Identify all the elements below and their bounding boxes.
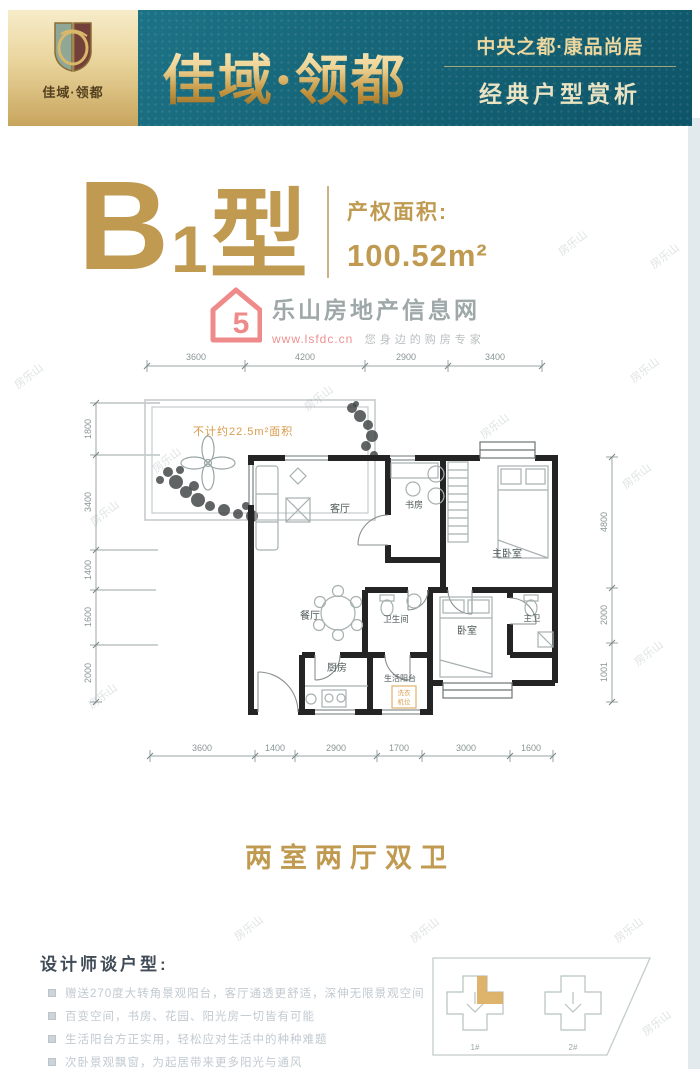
building-2-footprint — [545, 976, 601, 1030]
room-label-living: 客厅 — [330, 502, 350, 515]
header-taglines: 中央之都·康品尚居 经典户型赏析 — [444, 32, 676, 109]
dimension-labels-top: 3600 4200 2900 3400 — [186, 352, 505, 362]
site-plan-boundary — [433, 958, 650, 1055]
dim-label: 1800 — [83, 419, 93, 439]
designer-point-text: 生活阳台方正实用，轻松应对生活中的种种难题 — [65, 1033, 328, 1048]
sofa-icon — [256, 466, 310, 550]
designer-point: 赠送270度大转角景观阳台，客厅通透更舒适，深伸无限景观空间 — [40, 987, 420, 1002]
room-label-bathroom: 卫生间 — [383, 614, 409, 624]
dim-label: 3400 — [83, 492, 93, 512]
washer-label-1: 洗衣 — [398, 688, 412, 697]
dim-label: 1600 — [83, 607, 93, 627]
room-label-master-bath: 主卫 — [523, 613, 541, 623]
unit-type-number: 1 — [171, 216, 208, 282]
dim-label: 4800 — [599, 512, 609, 532]
brand-shield-icon — [49, 20, 97, 76]
room-label-master-bedroom: 主卧室 — [492, 547, 522, 560]
room-label-bedroom: 卧室 — [457, 624, 477, 637]
dim-label: 2900 — [326, 743, 346, 753]
dining-table-icon — [314, 586, 363, 641]
ls-house-logo-icon: 5 — [210, 287, 262, 343]
header-teal-panel: 佳域·领都 中央之都·康品尚居 经典户型赏析 — [138, 10, 692, 126]
washer-label-2: 机位 — [398, 697, 412, 706]
flyer-page: 佳域·领都 佳域·领都 中央之都·康品尚居 经典户型赏析 B 1 型 产权面积:… — [0, 0, 700, 1069]
tagline-top: 中央之都·康品尚居 — [444, 32, 676, 59]
tagline-divider — [444, 66, 676, 67]
dim-label: 3600 — [186, 352, 206, 362]
dim-label: 2000 — [599, 605, 609, 625]
designer-point: 次卧景观飘窗，为起居带来更多阳光与通风 — [40, 1056, 420, 1069]
site-name: 乐山房地产信息网 — [272, 291, 485, 325]
dim-label: 2000 — [83, 663, 93, 683]
dim-label: 1600 — [521, 743, 541, 753]
site-url: www.lsfdc.cn — [272, 332, 353, 346]
dim-label: 1700 — [389, 743, 409, 753]
room-label-service-balcony: 生活阳台 — [384, 673, 416, 683]
dim-label: 1400 — [83, 560, 93, 580]
floor-plan: 3600 4200 2900 3400 3600 1400 2900 1700 … — [0, 350, 700, 780]
site-watermark-text: 乐山房地产信息网 www.lsfdc.cn 您身边的购房专家 — [272, 287, 485, 347]
bed-icon — [440, 597, 492, 677]
designer-point: 百变空间，书房、花园、阳光房一切皆有可能 — [40, 1010, 420, 1025]
designer-point-list: 赠送270度大转角景观阳台，客厅通透更舒适，深伸无限景观空间 百变空间，书房、花… — [40, 987, 420, 1069]
dim-label: 3000 — [456, 743, 476, 753]
kitchen-counter-icon — [305, 686, 368, 707]
unit-type-title: B 1 型 — [78, 166, 308, 286]
building-1-label: 1# — [471, 1043, 480, 1052]
washer-badge: 洗衣 机位 — [392, 686, 416, 708]
plant-icon — [347, 401, 378, 459]
designer-notes: 设计师谈户型: 赠送270度大转角景观阳台，客厅通透更舒适，深伸无限景观空间 百… — [40, 950, 420, 1069]
page-watermark: 房乐山 — [611, 914, 647, 947]
brand-title: 佳域·领都 — [162, 36, 407, 115]
toilet-icon — [380, 594, 421, 616]
bullet-square-icon — [48, 1012, 56, 1020]
site-watermark: 5 乐山房地产信息网 www.lsfdc.cn 您身边的购房专家 — [210, 287, 485, 347]
designer-point-text: 赠送270度大转角景观阳台，客厅通透更舒适，深伸无限景观空间 — [65, 987, 425, 1002]
dim-label: 2900 — [396, 352, 416, 362]
designer-point: 生活阳台方正实用，轻松应对生活中的种种难题 — [40, 1033, 420, 1048]
dimension-chain-left — [90, 400, 160, 705]
site-slogan: 您身边的购房专家 — [365, 334, 485, 346]
bullet-square-icon — [48, 989, 56, 997]
unit-title-divider — [327, 186, 329, 278]
room-label-dining: 餐厅 — [300, 609, 320, 622]
brand-logo-panel: 佳域·领都 — [8, 10, 138, 126]
dim-label: 3600 — [192, 743, 212, 753]
tagline-bottom: 经典户型赏析 — [444, 75, 676, 109]
dimension-labels-left: 1800 3400 1400 1600 2000 — [83, 419, 93, 683]
dimension-labels-bottom: 3600 1400 2900 1700 3000 1600 — [192, 743, 541, 753]
dimension-labels-right: 4800 2000 1001 — [599, 512, 609, 682]
site-plan-key: 1# 2# — [425, 950, 665, 1065]
dim-label: 3400 — [485, 352, 505, 362]
page-watermark: 房乐山 — [407, 914, 443, 947]
designer-point-text: 次卧景观飘窗，为起居带来更多阳光与通风 — [65, 1056, 303, 1069]
area-value: 100.52m² — [347, 238, 488, 274]
dim-label: 1400 — [265, 743, 285, 753]
area-block: 产权面积: 100.52m² — [347, 196, 488, 274]
dim-label: 4200 — [295, 352, 315, 362]
bullet-square-icon — [48, 1058, 56, 1066]
dim-label: 1001 — [599, 662, 609, 682]
page-watermark: 房乐山 — [231, 912, 267, 945]
unit-type-suffix: 型 — [210, 186, 308, 284]
wardrobe-icon — [448, 462, 468, 542]
room-label-study: 书房 — [405, 499, 423, 510]
brand-logo-text: 佳域·领都 — [42, 82, 103, 101]
designer-point-text: 百变空间，书房、花园、阳光房一切皆有可能 — [65, 1010, 315, 1025]
unit-type-letter: B — [78, 166, 169, 286]
master-bed-icon — [498, 466, 548, 558]
study-desk-icon — [391, 463, 444, 504]
terrace-table-icon — [181, 436, 235, 490]
page-watermark: 房乐山 — [555, 227, 591, 260]
header-banner: 佳域·领都 佳域·领都 中央之都·康品尚居 经典户型赏析 — [8, 10, 692, 126]
bullet-square-icon — [48, 1035, 56, 1043]
building-2-label: 2# — [569, 1043, 578, 1052]
layout-summary-title: 两室两厅双卫 — [0, 836, 700, 875]
area-label: 产权面积: — [347, 196, 488, 226]
designer-heading: 设计师谈户型: — [40, 950, 420, 975]
site-tagline: www.lsfdc.cn 您身边的购房专家 — [272, 331, 485, 347]
room-label-kitchen: 厨房 — [327, 661, 347, 674]
ls-logo-glyph: 5 — [233, 307, 250, 340]
highlighted-unit — [477, 976, 503, 1004]
page-watermark: 房乐山 — [647, 240, 683, 273]
